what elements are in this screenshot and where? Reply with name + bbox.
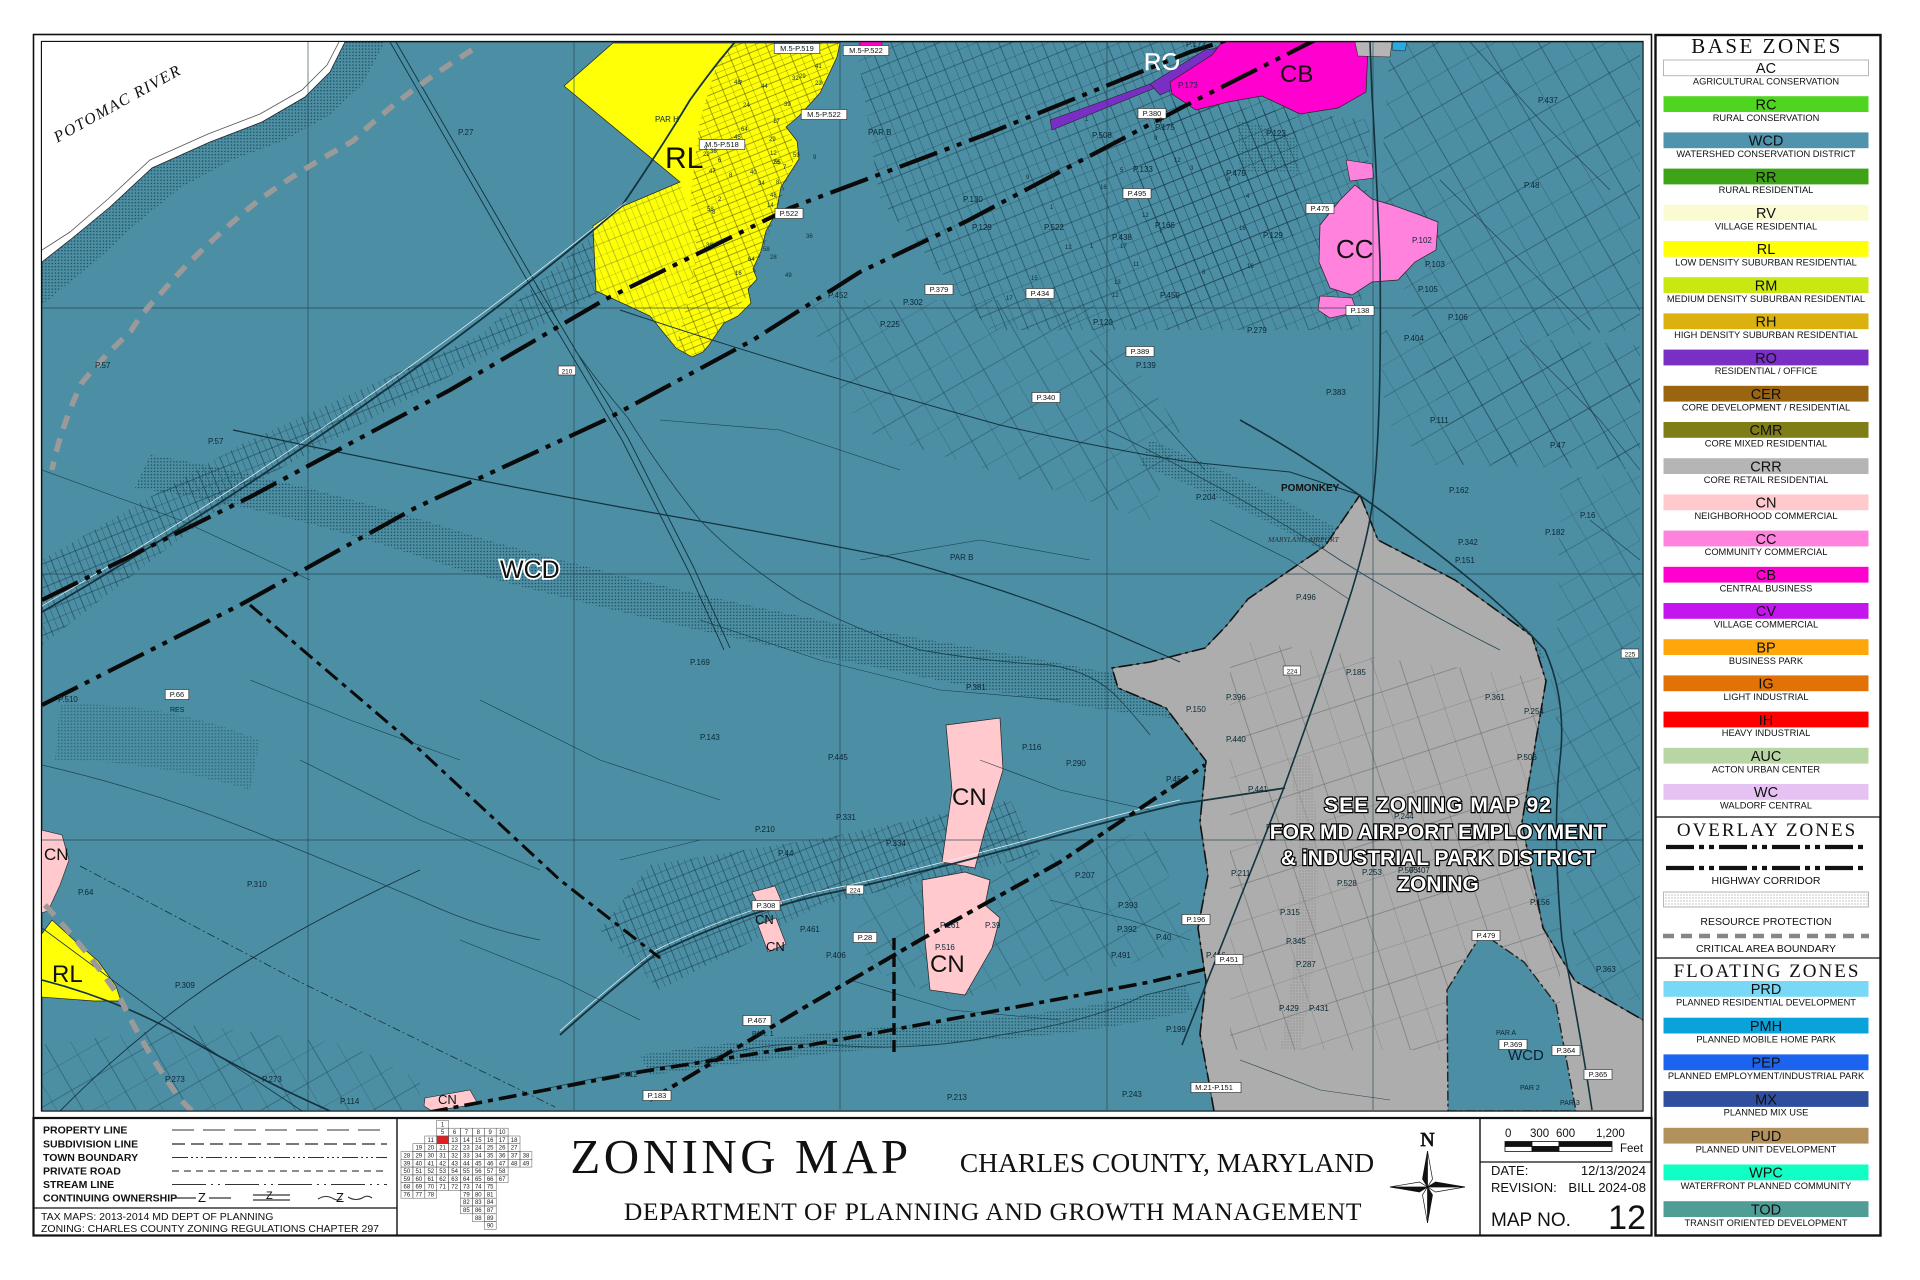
svg-text:225: 225	[1625, 651, 1636, 658]
svg-text:CC: CC	[1336, 234, 1374, 264]
svg-text:RESIDENTIAL / OFFICE: RESIDENTIAL / OFFICE	[1715, 366, 1817, 376]
svg-text:65: 65	[475, 1177, 482, 1183]
svg-text:CORE RETAIL RESIDENTIAL: CORE RETAIL RESIDENTIAL	[1704, 475, 1829, 485]
svg-text:POMONKEY: POMONKEY	[1281, 483, 1340, 494]
svg-text:42: 42	[439, 1161, 446, 1167]
svg-text:69: 69	[415, 1185, 422, 1191]
svg-text:P.363: P.363	[1596, 965, 1616, 974]
svg-text:MEDIUM DENSITY SUBURBAN RESIDE: MEDIUM DENSITY SUBURBAN RESIDENTIAL	[1667, 294, 1865, 304]
svg-text:31: 31	[439, 1154, 446, 1160]
svg-text:224: 224	[850, 887, 861, 894]
svg-text:66: 66	[487, 1177, 494, 1183]
svg-text:PAR B: PAR B	[950, 553, 973, 562]
svg-text:23: 23	[463, 1146, 470, 1152]
svg-text:28: 28	[404, 1154, 411, 1160]
svg-text:P.138: P.138	[1351, 306, 1370, 315]
svg-text:DEPARTMENT OF PLANNING AND GRO: DEPARTMENT OF PLANNING AND GROWTH MANAGE…	[624, 1197, 1362, 1226]
svg-text:41: 41	[815, 64, 822, 70]
svg-text:P.309: P.309	[175, 981, 195, 990]
svg-text:P.345: P.345	[1286, 937, 1306, 946]
svg-text:64: 64	[741, 127, 748, 133]
svg-text:55: 55	[463, 1169, 470, 1175]
svg-text:P.279: P.279	[1247, 326, 1267, 335]
svg-text:84: 84	[487, 1200, 494, 1206]
svg-text:210: 210	[562, 368, 573, 375]
svg-text:BUSINESS PARK: BUSINESS PARK	[1729, 656, 1804, 666]
svg-text:DATE:: DATE:	[1491, 1163, 1528, 1178]
svg-text:83: 83	[475, 1200, 482, 1206]
svg-text:CONTINUING OWNERSHIP: CONTINUING OWNERSHIP	[43, 1193, 177, 1205]
svg-text:15: 15	[1031, 276, 1038, 282]
svg-text:RL: RL	[1757, 242, 1776, 258]
svg-text:P.27: P.27	[458, 128, 474, 137]
svg-text:52: 52	[427, 1169, 434, 1175]
svg-text:36: 36	[499, 1154, 506, 1160]
svg-text:74: 74	[475, 1185, 482, 1191]
svg-text:ZONING MAP: ZONING MAP	[570, 1129, 911, 1184]
svg-text:P.173: P.173	[1178, 81, 1198, 90]
svg-text:80: 80	[475, 1192, 482, 1198]
svg-text:CN: CN	[930, 951, 965, 978]
svg-text:P.16: P.16	[1580, 511, 1596, 520]
svg-text:P.334: P.334	[886, 839, 906, 848]
svg-text:VILLAGE COMMERCIAL: VILLAGE COMMERCIAL	[1714, 620, 1818, 630]
svg-text:P.45: P.45	[1166, 775, 1182, 784]
svg-text:36: 36	[710, 149, 717, 155]
svg-text:P.441: P.441	[1248, 785, 1268, 794]
svg-text:P.106: P.106	[1448, 313, 1468, 322]
svg-text:M.5-P.522: M.5-P.522	[849, 46, 883, 55]
svg-text:16: 16	[1239, 226, 1246, 232]
svg-text:P.431: P.431	[1309, 1004, 1329, 1013]
svg-text:SUBDIVISION LINE: SUBDIVISION LINE	[43, 1139, 138, 1151]
svg-text:P.120: P.120	[1093, 318, 1113, 327]
svg-text:M.21-P.151: M.21-P.151	[1195, 1083, 1233, 1092]
svg-text:P.510: P.510	[58, 695, 78, 704]
svg-text:54: 54	[451, 1169, 458, 1175]
svg-text:P.340: P.340	[1037, 393, 1056, 402]
svg-text:33: 33	[463, 1154, 470, 1160]
svg-text:12/13/2024: 12/13/2024	[1581, 1163, 1646, 1178]
svg-text:48: 48	[770, 193, 777, 199]
svg-text:89: 89	[487, 1216, 494, 1222]
svg-text:224: 224	[1287, 668, 1298, 675]
svg-text:38: 38	[706, 243, 713, 249]
svg-text:23: 23	[815, 81, 822, 87]
svg-text:48: 48	[734, 80, 741, 86]
svg-text:50: 50	[404, 1169, 411, 1175]
svg-text:P.210: P.210	[755, 825, 775, 834]
svg-text:HIGHWAY CORRIDOR: HIGHWAY CORRIDOR	[1712, 875, 1821, 887]
svg-text:PAR B: PAR B	[868, 128, 891, 137]
svg-text:RURAL RESIDENTIAL: RURAL RESIDENTIAL	[1719, 185, 1814, 195]
svg-text:29: 29	[769, 137, 776, 143]
svg-text:CORE MIXED RESIDENTIAL: CORE MIXED RESIDENTIAL	[1705, 439, 1827, 449]
svg-text:47: 47	[499, 1161, 506, 1167]
svg-text:P.213: P.213	[947, 1093, 967, 1102]
svg-text:ZONING: CHARLES COUNTY ZONING: ZONING: CHARLES COUNTY ZONING REGULATION…	[41, 1223, 379, 1235]
svg-text:P.396: P.396	[1226, 693, 1246, 702]
svg-text:P.491: P.491	[1111, 951, 1131, 960]
svg-text:PLANNED RESIDENTIAL DEVELOPMEN: PLANNED RESIDENTIAL DEVELOPMENT	[1676, 998, 1856, 1008]
svg-text:P.406: P.406	[826, 951, 846, 960]
svg-text:19: 19	[415, 1146, 422, 1152]
svg-text:P.412: P.412	[620, 1072, 637, 1079]
svg-text:REVISION:: REVISION:	[1491, 1180, 1557, 1195]
svg-text:Feet: Feet	[1620, 1143, 1644, 1155]
svg-text:CENTRAL BUSINESS: CENTRAL BUSINESS	[1720, 583, 1813, 593]
svg-text:PRIVATE ROAD: PRIVATE ROAD	[43, 1166, 121, 1178]
svg-text:24: 24	[743, 103, 750, 109]
svg-text:81: 81	[487, 1192, 494, 1198]
svg-text:PAR. 1: PAR. 1	[752, 1031, 774, 1038]
svg-text:P.475: P.475	[1311, 204, 1330, 213]
svg-text:P.273: P.273	[262, 1075, 282, 1084]
svg-text:M.5-P.519: M.5-P.519	[780, 44, 814, 53]
svg-text:P.380: P.380	[1143, 109, 1162, 118]
svg-text:26: 26	[499, 1146, 506, 1152]
svg-text:P.479: P.479	[1477, 931, 1496, 940]
svg-text:P.129: P.129	[972, 223, 992, 232]
svg-text:OVERLAY ZONES: OVERLAY ZONES	[1677, 820, 1857, 841]
svg-text:AUC: AUC	[1751, 749, 1782, 765]
svg-text:CN: CN	[44, 845, 69, 864]
svg-text:SEE ZONING MAP 92: SEE ZONING MAP 92	[1324, 794, 1552, 817]
svg-text:CRR: CRR	[1750, 459, 1781, 475]
svg-text:63: 63	[451, 1177, 458, 1183]
svg-text:CN: CN	[438, 1092, 457, 1107]
svg-text:WALDORF CENTRAL: WALDORF CENTRAL	[1720, 801, 1812, 811]
svg-text:59: 59	[793, 153, 800, 159]
svg-text:P.44: P.44	[778, 849, 794, 858]
svg-text:82: 82	[463, 1200, 470, 1206]
svg-text:IH: IH	[1759, 713, 1774, 729]
svg-text:P.315: P.315	[1280, 908, 1300, 917]
svg-text:Z: Z	[336, 1190, 344, 1205]
svg-text:WCD: WCD	[1749, 134, 1784, 150]
svg-text:12: 12	[770, 151, 777, 157]
svg-text:TRANSIT ORIENTED DEVELOPMENT: TRANSIT ORIENTED DEVELOPMENT	[1684, 1218, 1847, 1228]
svg-text:STREAM LINE: STREAM LINE	[43, 1179, 114, 1191]
svg-text:70: 70	[427, 1185, 434, 1191]
svg-text:62: 62	[439, 1177, 446, 1183]
svg-text:CN: CN	[1756, 496, 1777, 512]
svg-text:P.161: P.161	[940, 921, 960, 930]
svg-text:P.105: P.105	[1418, 285, 1438, 294]
svg-text:12: 12	[1112, 293, 1119, 299]
svg-text:P.57: P.57	[208, 437, 224, 446]
svg-text:12: 12	[1174, 158, 1181, 164]
svg-text:36: 36	[806, 234, 813, 240]
svg-text:RES: RES	[170, 707, 185, 714]
svg-text:RESOURCE PROTECTION: RESOURCE PROTECTION	[1700, 916, 1831, 928]
svg-text:72: 72	[451, 1185, 458, 1191]
svg-text:P.169: P.169	[690, 658, 710, 667]
svg-text:40: 40	[750, 170, 757, 176]
svg-text:P.445: P.445	[828, 753, 848, 762]
svg-text:P.196: P.196	[1187, 915, 1206, 924]
svg-text:NEIGHBORHOOD COMMERCIAL: NEIGHBORHOOD COMMERCIAL	[1694, 511, 1837, 521]
svg-text:41: 41	[427, 1161, 434, 1167]
svg-text:P.183: P.183	[648, 1091, 667, 1100]
svg-text:P.151: P.151	[1455, 556, 1475, 565]
svg-text:21: 21	[439, 1146, 446, 1152]
svg-text:ACTON URBAN CENTER: ACTON URBAN CENTER	[1712, 764, 1821, 774]
svg-text:P.365: P.365	[1589, 1070, 1608, 1079]
svg-text:P.522: P.522	[1044, 223, 1064, 232]
svg-text:300: 300	[1530, 1128, 1549, 1140]
svg-text:71: 71	[439, 1185, 446, 1191]
svg-text:11: 11	[428, 1138, 435, 1144]
svg-text:P.133: P.133	[1133, 165, 1153, 174]
svg-text:TAX MAPS: 2013-2014 MD DEPT OF: TAX MAPS: 2013-2014 MD DEPT OF PLANNING	[41, 1211, 273, 1223]
svg-text:ZONING: ZONING	[1397, 873, 1479, 896]
svg-text:P.381: P.381	[966, 683, 986, 692]
svg-text:P.451: P.451	[1220, 955, 1239, 964]
svg-text:P.495: P.495	[1128, 189, 1147, 198]
svg-text:49: 49	[523, 1161, 530, 1167]
svg-text:20: 20	[427, 1146, 434, 1152]
svg-text:45: 45	[734, 135, 741, 141]
svg-text:85: 85	[463, 1208, 470, 1214]
svg-text:BP: BP	[1756, 640, 1775, 656]
svg-text:56: 56	[475, 1169, 482, 1175]
svg-text:P.506: P.506	[1517, 753, 1537, 762]
svg-text:39: 39	[404, 1161, 411, 1167]
svg-text:11: 11	[1133, 262, 1140, 268]
svg-text:P.162: P.162	[1449, 486, 1469, 495]
svg-text:34: 34	[758, 181, 765, 187]
svg-text:22: 22	[451, 1146, 458, 1152]
svg-text:13: 13	[451, 1138, 458, 1144]
svg-text:PLANNED EMPLOYMENT/INDUSTRIAL: PLANNED EMPLOYMENT/INDUSTRIAL PARK	[1668, 1071, 1865, 1081]
svg-text:59: 59	[404, 1177, 411, 1183]
svg-text:P.429: P.429	[1279, 1004, 1299, 1013]
svg-text:12: 12	[1065, 245, 1072, 251]
svg-text:RO: RO	[1755, 351, 1777, 367]
svg-text:P.379: P.379	[930, 285, 949, 294]
svg-text:P.308: P.308	[757, 901, 776, 910]
svg-text:CHARLES COUNTY, MARYLAND: CHARLES COUNTY, MARYLAND	[960, 1147, 1374, 1178]
svg-text:RURAL CONSERVATION: RURAL CONSERVATION	[1713, 113, 1820, 123]
svg-text:73: 73	[463, 1185, 470, 1191]
svg-text:10: 10	[499, 1130, 506, 1136]
svg-text:17: 17	[499, 1138, 506, 1144]
svg-text:88: 88	[475, 1216, 482, 1222]
svg-text:CORE DEVELOPMENT / RESIDENTIAL: CORE DEVELOPMENT / RESIDENTIAL	[1682, 402, 1850, 412]
svg-text:PRD: PRD	[1751, 982, 1782, 998]
svg-text:17: 17	[1120, 244, 1127, 250]
svg-text:FLOATING ZONES: FLOATING ZONES	[1674, 961, 1861, 982]
svg-text:32: 32	[451, 1154, 458, 1160]
svg-text:& iNDUSTRIAL PARK DISTRICT: & iNDUSTRIAL PARK DISTRICT	[1281, 847, 1595, 870]
svg-text:28: 28	[773, 160, 780, 166]
svg-text:CN: CN	[766, 939, 785, 954]
svg-text:45: 45	[475, 1161, 482, 1167]
svg-text:90: 90	[487, 1224, 494, 1230]
svg-text:28: 28	[770, 255, 777, 261]
svg-text:34: 34	[475, 1154, 482, 1160]
svg-text:TOD: TOD	[1751, 1202, 1781, 1218]
svg-text:43: 43	[451, 1161, 458, 1167]
svg-text:FOR MD AIRPORT EMPLOYMENT: FOR MD AIRPORT EMPLOYMENT	[1270, 821, 1607, 844]
svg-text:CB: CB	[1756, 568, 1776, 584]
svg-text:P.331: P.331	[836, 813, 856, 822]
svg-text:0: 0	[1505, 1128, 1511, 1140]
svg-text:P.143: P.143	[700, 733, 720, 742]
svg-text:RL: RL	[665, 142, 703, 175]
svg-text:P.392: P.392	[1117, 925, 1137, 934]
svg-text:47: 47	[709, 169, 716, 175]
svg-text:P.461: P.461	[800, 925, 820, 934]
svg-text:24: 24	[475, 1146, 482, 1152]
svg-text:18: 18	[511, 1138, 518, 1144]
svg-text:14: 14	[767, 203, 774, 209]
svg-text:P.342: P.342	[1458, 538, 1478, 547]
svg-text:PAR H: PAR H	[655, 115, 679, 124]
svg-text:64: 64	[748, 257, 755, 263]
svg-text:P.182: P.182	[1545, 528, 1565, 537]
svg-text:P.48: P.48	[1524, 181, 1540, 190]
svg-text:RH: RH	[1756, 315, 1777, 331]
svg-text:PAR 2: PAR 2	[1520, 1085, 1540, 1092]
svg-text:AGRICULTURAL CONSERVATION: AGRICULTURAL CONSERVATION	[1693, 77, 1839, 87]
svg-text:P.467: P.467	[748, 1016, 767, 1025]
svg-text:49: 49	[785, 273, 792, 279]
svg-text:P.211: P.211	[1231, 869, 1251, 878]
svg-text:76: 76	[404, 1192, 411, 1198]
svg-text:CN: CN	[755, 912, 774, 927]
svg-text:58: 58	[707, 207, 714, 213]
svg-text:P.39: P.39	[985, 921, 1001, 930]
svg-text:PROPERTY LINE: PROPERTY LINE	[43, 1125, 127, 1137]
svg-text:86: 86	[475, 1208, 482, 1214]
svg-text:P.175: P.175	[1155, 123, 1175, 132]
svg-text:P.225: P.225	[880, 320, 900, 329]
svg-text:48: 48	[511, 1161, 518, 1167]
svg-text:27: 27	[511, 1146, 518, 1152]
svg-text:P.254: P.254	[1524, 707, 1544, 716]
svg-text:P.28: P.28	[858, 933, 872, 942]
svg-text:LOW DENSITY SUBURBAN RESIDENTI: LOW DENSITY SUBURBAN RESIDENTIAL	[1675, 258, 1857, 268]
svg-text:LIGHT INDUSTRIAL: LIGHT INDUSTRIAL	[1723, 692, 1808, 702]
svg-text:P.528: P.528	[1337, 879, 1357, 888]
svg-text:Z: Z	[198, 1190, 206, 1205]
svg-text:P.310: P.310	[247, 880, 267, 889]
svg-text:WC: WC	[1754, 785, 1778, 801]
svg-text:IG: IG	[1758, 677, 1773, 693]
svg-text:MX: MX	[1755, 1092, 1777, 1108]
svg-text:CMR: CMR	[1749, 423, 1782, 439]
svg-text:68: 68	[404, 1185, 411, 1191]
svg-text:PUD: PUD	[1751, 1129, 1782, 1145]
svg-text:RO: RO	[1144, 49, 1180, 76]
svg-text:P.199: P.199	[1166, 1025, 1186, 1034]
svg-text:46: 46	[487, 1161, 494, 1167]
svg-text:P.204: P.204	[1196, 493, 1216, 502]
svg-text:P.103: P.103	[1425, 260, 1445, 269]
svg-text:M.5-P.518: M.5-P.518	[705, 140, 739, 149]
svg-text:51: 51	[415, 1169, 422, 1175]
svg-text:P.393: P.393	[1118, 901, 1138, 910]
svg-text:61: 61	[427, 1177, 434, 1183]
svg-text:79: 79	[463, 1192, 470, 1198]
svg-text:600: 600	[1556, 1128, 1575, 1140]
svg-text:64: 64	[463, 1177, 470, 1183]
svg-text:35: 35	[487, 1154, 494, 1160]
svg-text:P.404: P.404	[1404, 334, 1424, 343]
svg-text:16: 16	[1100, 185, 1107, 191]
svg-text:P.516: P.516	[935, 943, 955, 952]
svg-text:WATERSHED CONSERVATION DISTRIC: WATERSHED CONSERVATION DISTRICT	[1676, 149, 1856, 159]
svg-text:P.123: P.123	[1266, 129, 1286, 138]
svg-text:P.243: P.243	[1122, 1090, 1142, 1099]
svg-text:38: 38	[523, 1154, 530, 1160]
svg-text:TOWN BOUNDARY: TOWN BOUNDARY	[43, 1152, 138, 1164]
svg-text:13: 13	[1114, 280, 1121, 286]
svg-text:16: 16	[487, 1138, 494, 1144]
svg-text:87: 87	[487, 1208, 494, 1214]
svg-text:P.508: P.508	[1092, 131, 1112, 140]
svg-text:57: 57	[487, 1169, 494, 1175]
svg-text:P.302: P.302	[903, 298, 923, 307]
svg-text:40: 40	[415, 1161, 422, 1167]
svg-text:CB: CB	[1280, 61, 1313, 88]
svg-text:N: N	[1420, 1129, 1434, 1151]
svg-text:P.383: P.383	[1326, 388, 1346, 397]
svg-text:P.66: P.66	[170, 690, 184, 699]
svg-text:CC: CC	[1756, 532, 1777, 548]
svg-text:COMMUNITY COMMERCIAL: COMMUNITY COMMERCIAL	[1705, 547, 1828, 557]
svg-text:30: 30	[427, 1154, 434, 1160]
svg-text:75: 75	[487, 1185, 494, 1191]
svg-text:P.369: P.369	[1504, 1040, 1523, 1049]
svg-text:RM: RM	[1755, 278, 1778, 294]
svg-text:HEAVY INDUSTRIAL: HEAVY INDUSTRIAL	[1722, 728, 1811, 738]
svg-text:P.130: P.130	[963, 195, 983, 204]
svg-text:PLANNED UNIT DEVELOPMENT: PLANNED UNIT DEVELOPMENT	[1696, 1144, 1837, 1154]
svg-text:P.496: P.496	[1296, 593, 1316, 602]
svg-text:P.273: P.273	[165, 1075, 185, 1084]
svg-text:P.64: P.64	[78, 888, 94, 897]
svg-text:P.139: P.139	[1136, 361, 1156, 370]
svg-text:BASE ZONES: BASE ZONES	[1691, 34, 1843, 58]
svg-text:14: 14	[463, 1138, 470, 1144]
svg-text:P.522: P.522	[780, 209, 799, 218]
svg-text:M.5-P.522: M.5-P.522	[807, 110, 841, 119]
svg-text:P.185: P.185	[1346, 668, 1366, 677]
svg-text:P.57: P.57	[95, 361, 111, 370]
svg-text:P.129: P.129	[1263, 231, 1283, 240]
svg-text:Z: Z	[266, 1190, 273, 1202]
svg-text:P.450: P.450	[1160, 291, 1180, 300]
svg-text:25: 25	[487, 1146, 494, 1152]
svg-text:AC: AC	[1756, 61, 1776, 77]
svg-text:17: 17	[1006, 296, 1013, 302]
svg-text:RV: RV	[1756, 206, 1776, 222]
svg-text:MAP NO.: MAP NO.	[1491, 1210, 1571, 1231]
svg-text:78: 78	[427, 1192, 434, 1198]
svg-text:PAR A: PAR A	[1496, 1030, 1516, 1037]
svg-text:VILLAGE RESIDENTIAL: VILLAGE RESIDENTIAL	[1715, 221, 1817, 231]
svg-text:16: 16	[735, 271, 742, 277]
svg-text:P.452: P.452	[828, 291, 848, 300]
svg-text:P.290: P.290	[1066, 759, 1086, 768]
svg-text:P.114: P.114	[340, 1097, 360, 1106]
svg-text:RR: RR	[1756, 170, 1777, 186]
svg-text:BILL 2024-08: BILL 2024-08	[1568, 1180, 1646, 1195]
svg-text:32: 32	[792, 76, 799, 82]
